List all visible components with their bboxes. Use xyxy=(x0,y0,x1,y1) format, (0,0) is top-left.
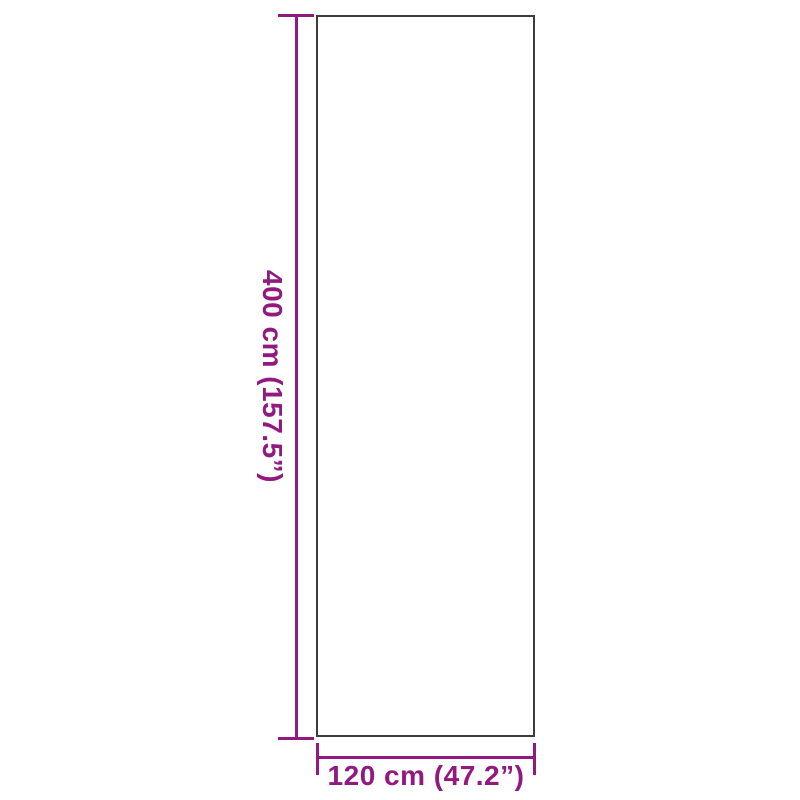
height-dimension-line xyxy=(295,14,298,740)
width-dimension-line xyxy=(316,756,536,759)
dimension-diagram: 400 cm (157.5”) 120 cm (47.2”) xyxy=(0,0,800,800)
width-dimension-label: 120 cm (47.2”) xyxy=(316,760,536,792)
height-dimension-bottom-cap xyxy=(278,737,314,740)
product-outline-rectangle xyxy=(316,15,535,737)
height-dimension-label: 400 cm (157.5”) xyxy=(250,15,294,737)
